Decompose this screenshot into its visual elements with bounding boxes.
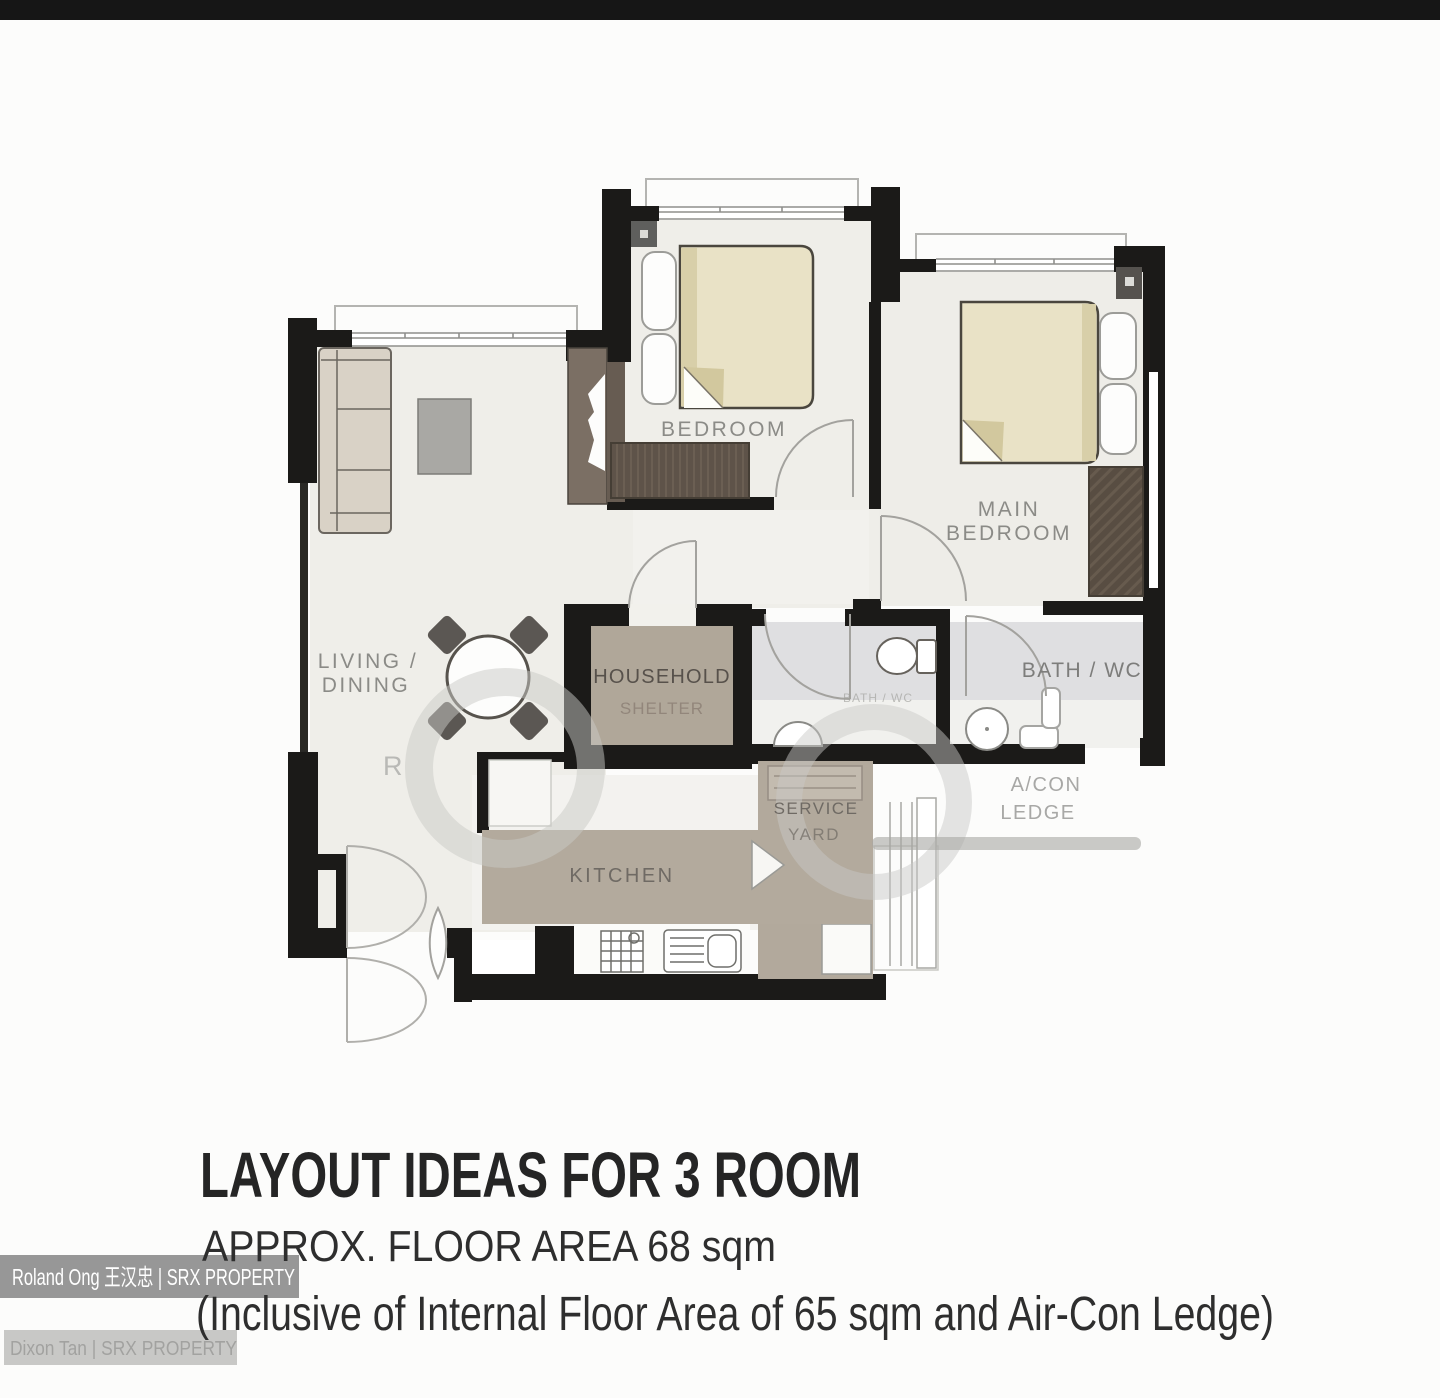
svg-text:SHELTER: SHELTER — [620, 699, 704, 718]
svg-text:LAYOUT IDEAS FOR 3 ROOM: LAYOUT IDEAS FOR 3 ROOM — [200, 1139, 861, 1211]
svg-text:YARD: YARD — [788, 825, 840, 844]
svg-text:BATH / WC: BATH / WC — [1022, 659, 1142, 682]
svg-text:R: R — [383, 751, 403, 781]
svg-text:(Inclusive of Internal Floor A: (Inclusive of Internal Floor Area of 65 … — [196, 1288, 1274, 1341]
svg-text:MAIN: MAIN — [978, 498, 1041, 521]
svg-text:Dixon Tan | SRX PROPERTY: Dixon Tan | SRX PROPERTY — [10, 1338, 237, 1360]
svg-text:BATH / WC: BATH / WC — [843, 691, 913, 705]
svg-text:HOUSEHOLD: HOUSEHOLD — [593, 666, 731, 688]
svg-text:SERVICE: SERVICE — [774, 799, 859, 818]
svg-text:APPROX. FLOOR AREA 68 sqm: APPROX. FLOOR AREA 68 sqm — [202, 1222, 776, 1271]
svg-text:BEDROOM: BEDROOM — [661, 418, 787, 441]
svg-text:A/CON: A/CON — [1011, 774, 1082, 796]
svg-text:LEDGE: LEDGE — [1000, 802, 1075, 824]
svg-text:BEDROOM: BEDROOM — [946, 522, 1072, 545]
svg-text:KITCHEN: KITCHEN — [569, 865, 674, 887]
svg-text:DINING: DINING — [322, 674, 411, 697]
svg-text:LIVING /: LIVING / — [318, 650, 419, 673]
